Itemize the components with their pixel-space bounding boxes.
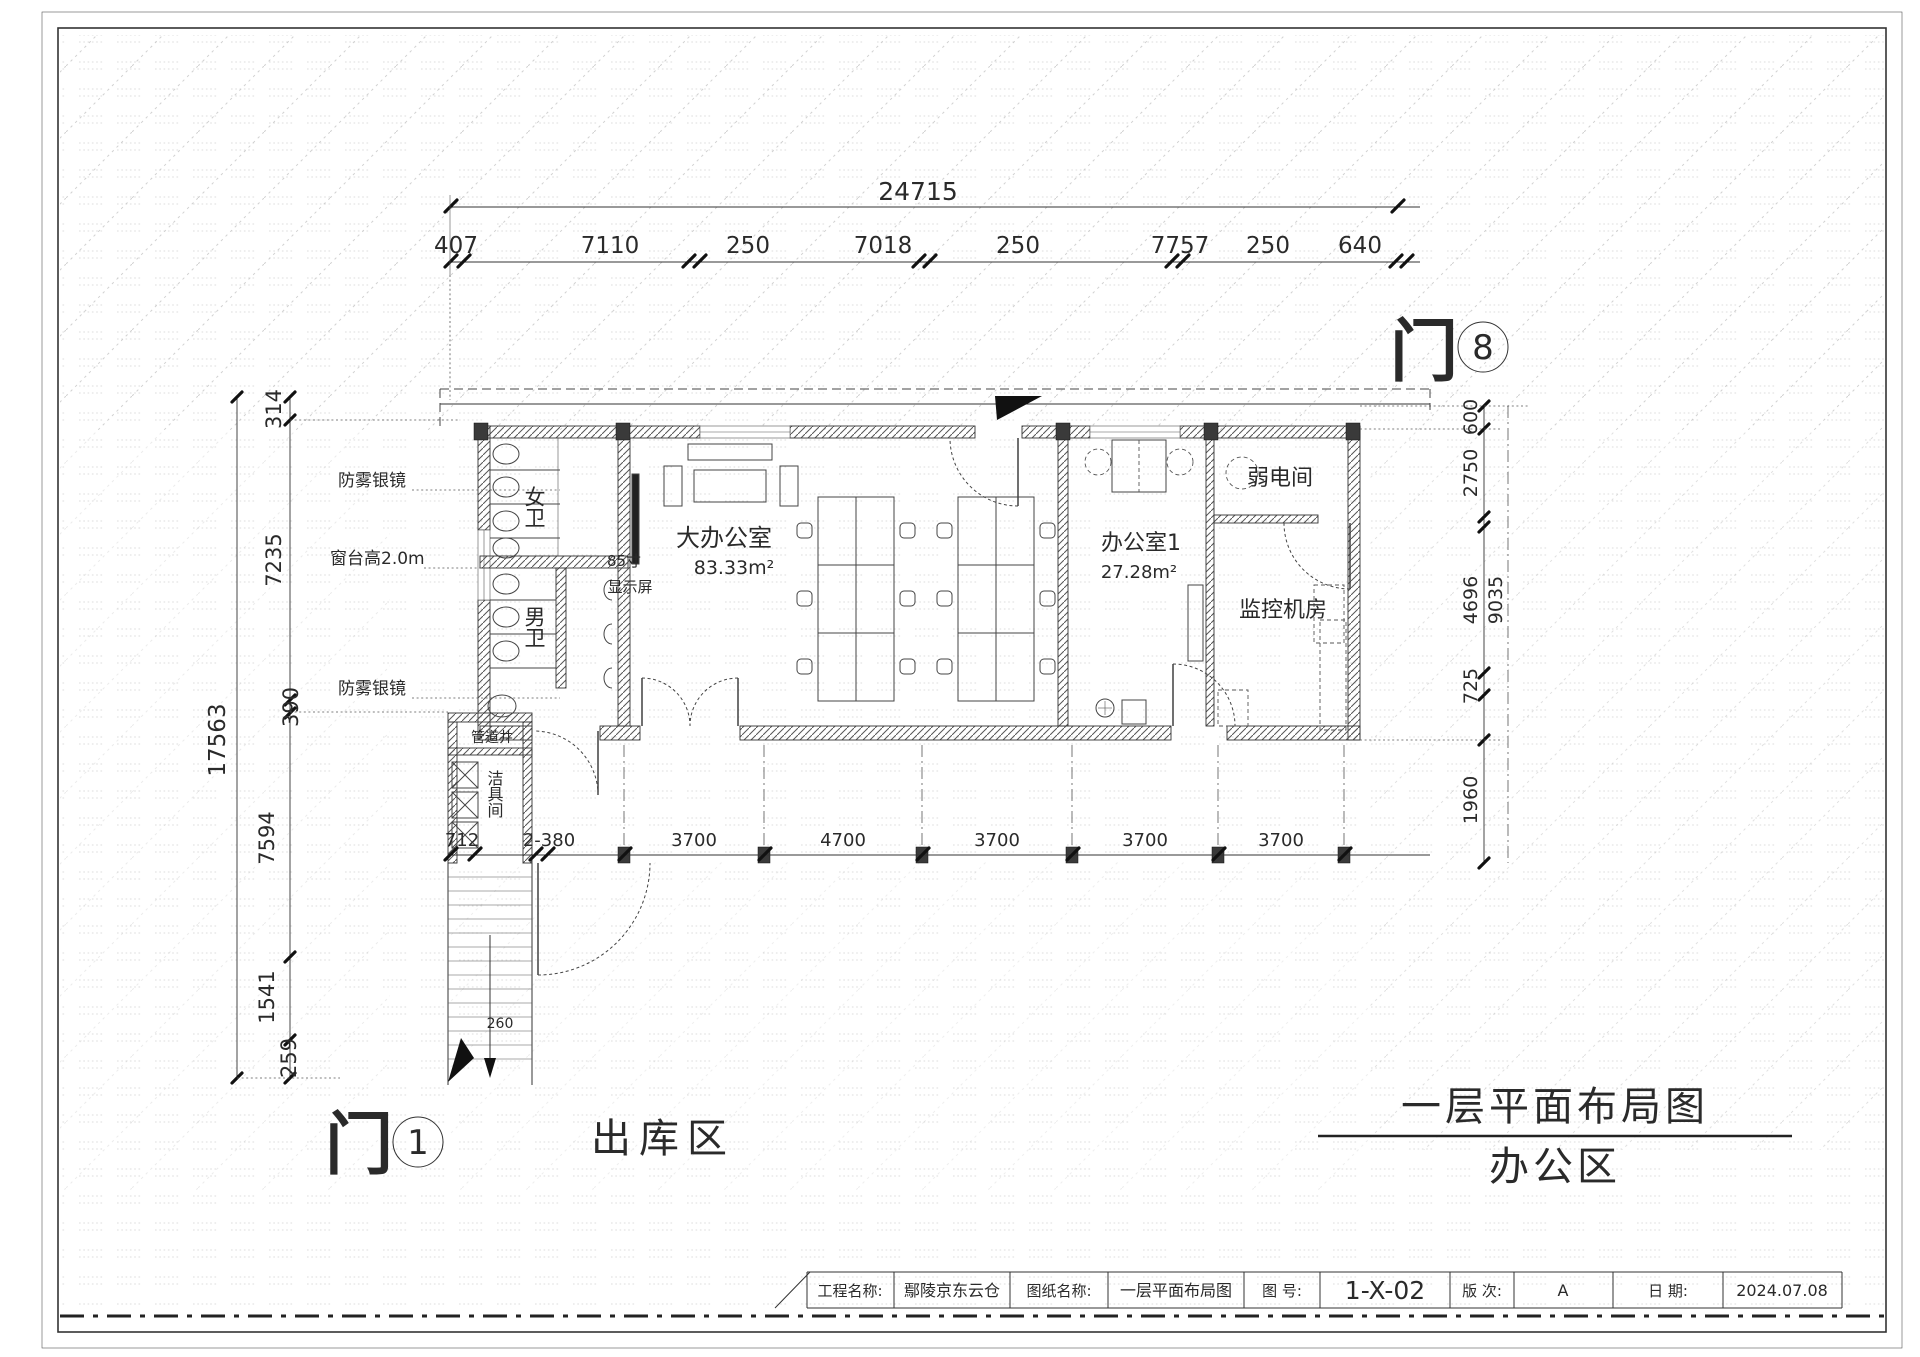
tb-number-value: 1-X-02: [1345, 1276, 1425, 1305]
tb-date-value: 2024.07.08: [1736, 1281, 1828, 1300]
dim-top-seg: 250: [1246, 233, 1290, 259]
room-office1: 办公室1: [1101, 531, 1181, 556]
dim-bottom-seg: 3700: [671, 830, 717, 851]
dim-right-outer: 9035: [1485, 576, 1507, 624]
tb-number-label: 图 号:: [1262, 1282, 1302, 1300]
dim-bottom-seg: 4700: [820, 830, 866, 851]
tb-revision-value: A: [1558, 1281, 1569, 1300]
mirror-bottom-label: 防雾银镜: [338, 679, 406, 699]
floor-plan-svg: 24715 407 7110 250 7018 250 7757 250 640…: [0, 0, 1920, 1357]
door1-num: 1: [407, 1123, 429, 1163]
dim-right-seg: 600: [1460, 399, 1482, 435]
main-title-line2: 办公区: [1489, 1144, 1621, 1190]
dim-top-total: 24715: [878, 177, 958, 206]
display-size-label: 85寸: [607, 552, 641, 570]
dim-top-seg: 7757: [1151, 233, 1210, 259]
dim-top-seg: 407: [434, 233, 478, 259]
dim-right-seg: 1960: [1460, 776, 1482, 824]
drawing-sheet: 24715 407 7110 250 7018 250 7757 250 640…: [0, 0, 1920, 1357]
dim-top-seg: 250: [726, 233, 770, 259]
dim-top-seg: 7110: [581, 233, 640, 259]
display-name-label: 显示屏: [607, 578, 652, 596]
door8-num: 8: [1472, 328, 1494, 368]
dim-bottom-seg: 3700: [1258, 830, 1304, 851]
door8-char: 门: [1390, 313, 1458, 392]
dim-right-seg: 725: [1460, 668, 1482, 704]
mirror-top-label: 防雾银镜: [338, 471, 406, 491]
tb-revision-label: 版 次:: [1462, 1282, 1502, 1300]
room-office1-area: 27.28m²: [1101, 562, 1177, 583]
room-monitor: 监控机房: [1239, 598, 1327, 623]
dim-bottom-seg: 3700: [1122, 830, 1168, 851]
dim-right-seg: 4696: [1460, 576, 1482, 624]
tb-date-label: 日 期:: [1648, 1282, 1688, 1300]
room-cleaning: 洁具间: [485, 770, 504, 819]
dim-bottom-seg: 712: [445, 830, 479, 851]
dim-left-seg: 1541: [255, 970, 279, 1023]
dim-top-seg: 640: [1338, 233, 1382, 259]
door1-char: 门: [325, 1106, 393, 1185]
room-women-wc: 女卫: [522, 486, 546, 528]
tb-project-label: 工程名称:: [817, 1282, 882, 1300]
dim-bottom-seg: 2-380: [523, 830, 575, 851]
stair-note: 260: [487, 1016, 514, 1032]
room-weak-current: 弱电间: [1247, 466, 1313, 491]
room-big-office-area: 83.33m²: [694, 557, 775, 579]
dim-top-seg: 7018: [854, 233, 913, 259]
room-men-wc: 男卫: [522, 606, 546, 648]
tb-project-value: 鄢陵京东云仓: [904, 1281, 1000, 1300]
main-title-line1: 一层平面布局图: [1401, 1084, 1709, 1130]
tb-drawing-label: 图纸名称:: [1026, 1282, 1091, 1300]
room-big-office: 大办公室: [676, 524, 772, 552]
dim-left-total: 17563: [205, 703, 231, 776]
dim-left-seg: 390: [279, 687, 303, 727]
outbound-area-label: 出库区: [591, 1116, 735, 1162]
dim-bottom-seg: 3700: [974, 830, 1020, 851]
room-pipe-shaft: 管道井: [471, 730, 513, 746]
dim-right-seg: 2750: [1460, 449, 1482, 497]
dim-left-seg: 7235: [262, 533, 286, 586]
dim-left-seg: 259: [277, 1038, 301, 1078]
dim-left-seg: 7594: [255, 811, 279, 864]
tb-drawing-value: 一层平面布局图: [1120, 1281, 1232, 1300]
tv-display: [632, 474, 639, 564]
dim-left-seg: 314: [262, 389, 286, 429]
dim-top-seg: 250: [996, 233, 1040, 259]
sill-label: 窗台高2.0m: [330, 549, 425, 569]
